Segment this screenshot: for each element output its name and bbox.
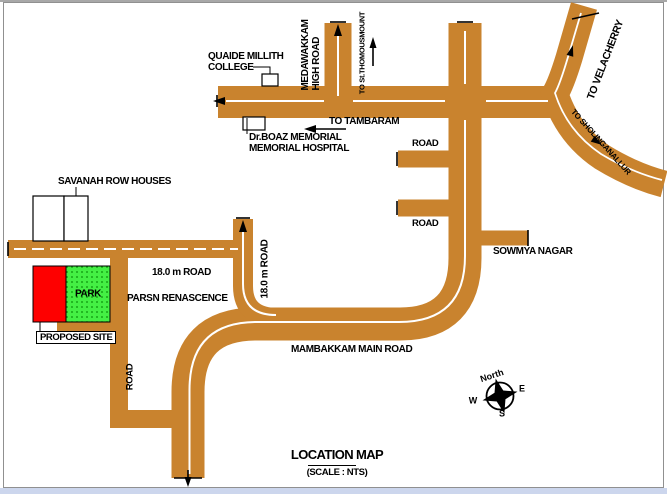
hospital-building xyxy=(243,117,265,130)
label-sowmya-nagar: SOWMYA NAGAR xyxy=(493,246,572,257)
roads xyxy=(8,6,664,478)
map-title: LOCATION MAP xyxy=(267,449,407,460)
label-18m-road-horizontal: 18.0 m ROAD xyxy=(152,267,211,278)
label-to-st-thomas: TO St.THOMOUSMOUNT xyxy=(357,12,368,94)
location-map-page: QUAIDE MILLITH COLLEGE MEDAWAKKAM HIGH R… xyxy=(0,0,667,494)
label-road-stub-upper: ROAD xyxy=(412,138,438,149)
label-mambakkam-main-road: MAMBAKKAM MAIN ROAD xyxy=(291,344,412,355)
label-18m-road-vertical: 18.0 m ROAD xyxy=(260,240,271,299)
label-to-tambaram: TO TAMBARAM xyxy=(329,116,399,127)
compass-west-label: W xyxy=(469,396,478,407)
hospital-label-line2: MEMORIAL HOSPITAL xyxy=(249,143,349,154)
label-savanah-row-houses: SAVANAH ROW HOUSES xyxy=(58,176,171,187)
hospital-label-line1: Dr.BOAZ MEMORIAL xyxy=(249,132,349,143)
arrow-to-st-thomas xyxy=(370,37,377,48)
medawakkam-line2: HIGH ROAD xyxy=(311,20,322,91)
medawakkam-line1: MEDAWAKKAM xyxy=(300,20,311,91)
label-medawakkam-high-road: MEDAWAKKAM HIGH ROAD xyxy=(300,20,322,91)
proposed-site-area xyxy=(33,266,66,322)
label-proposed-site: PROPOSED SITE xyxy=(36,331,116,344)
compass-east-label: E xyxy=(519,384,525,395)
label-parsn-renascence: PARSN RENASCENCE xyxy=(127,293,228,304)
window-bottom-edge xyxy=(0,488,667,494)
label-quaide-millith-college: QUAIDE MILLITH COLLEGE xyxy=(208,51,284,73)
label-park: PARK xyxy=(75,289,101,300)
college-label-line1: QUAIDE MILLITH xyxy=(208,51,284,62)
college-label-line2: COLLEGE xyxy=(208,62,284,73)
label-road-stub-lower: ROAD xyxy=(412,218,438,229)
map-scale-note: (SCALE : NTS) xyxy=(267,467,407,478)
row-house-2 xyxy=(64,196,88,241)
row-house-1 xyxy=(33,196,64,241)
window-top-edge xyxy=(0,0,667,2)
label-road-vertical: ROAD xyxy=(125,364,136,390)
arrow-south-main-road xyxy=(185,477,192,487)
compass-south-label: S xyxy=(499,409,505,420)
label-boaz-hospital: Dr.BOAZ MEMORIAL MEMORIAL HOSPITAL xyxy=(249,132,349,154)
college-building xyxy=(262,74,278,86)
